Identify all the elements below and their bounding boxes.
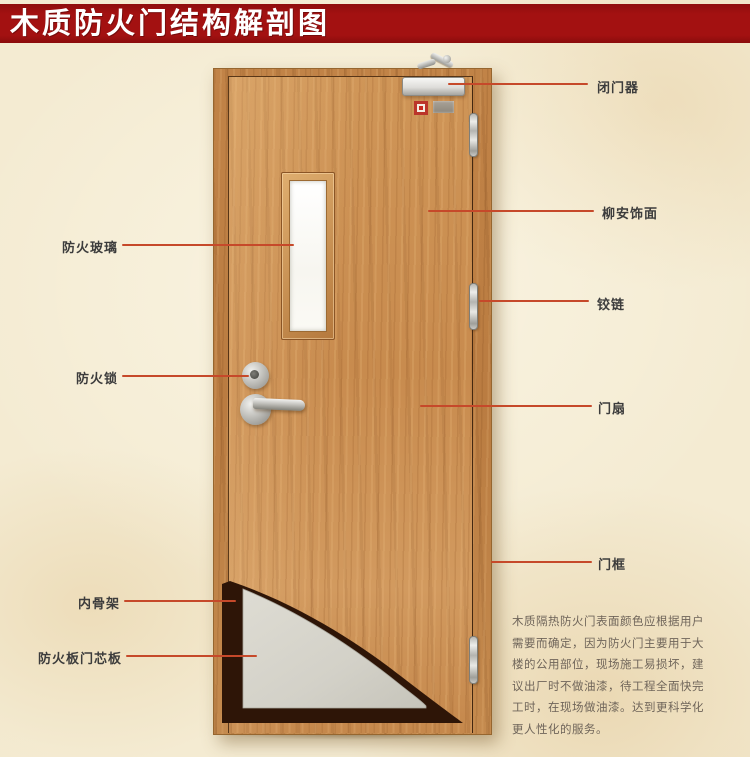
description-line: 楼的公用部位，现场施工易损坏，建 [512,655,712,677]
leader-line-lauan-veneer [428,210,594,212]
label-hinge: 铰链 [597,294,625,313]
description-line: 议出厂时不做油漆，待工程全面快完 [512,677,712,699]
description-line: 木质隔热防火门表面颜色应根据用户 [512,612,712,634]
label-fire-lock: 防火锁 [76,368,118,387]
lock-lever-handle [253,398,305,411]
leader-line-fire-board-core [126,655,257,657]
fire-rating-badge [414,101,428,115]
label-fire-glass: 防火玻璃 [62,237,118,256]
door-closer-elbow [443,55,451,63]
description-line: 工时，在现场做油漆。达到更科学化 [512,698,712,720]
description-line: 更人性化的服务。 [512,720,712,742]
leader-line-inner-skeleton [124,600,236,602]
door-closer-plate [433,101,454,113]
fire-glass-panel [281,172,335,340]
label-door-leaf: 门扇 [598,398,626,417]
door-cutaway-section [213,573,490,733]
leader-line-door-leaf [420,405,592,407]
leader-line-door-frame [491,561,592,563]
fire-glass [289,180,327,332]
fire-core-board-shape [243,589,426,708]
label-inner-skeleton: 内骨架 [78,593,120,612]
hinge-middle [469,283,478,330]
label-fire-board-core: 防火板门芯板 [38,648,122,667]
label-lauan-veneer: 柳安饰面 [602,203,658,222]
label-door-closer: 闭门器 [597,77,639,96]
product-description: 木质隔热防火门表面颜色应根据用户 需要而确定，因为防火门主要用于大 楼的公用部位… [512,612,712,742]
leader-line-fire-glass [122,244,294,246]
description-line: 需要而确定，因为防火门主要用于大 [512,634,712,656]
leader-line-door-closer [448,83,588,85]
label-door-frame: 门框 [598,554,626,573]
door-closer-body [402,77,465,96]
hinge-bottom [469,636,478,684]
hinge-top [469,113,478,157]
leader-line-fire-lock [122,375,249,377]
title-banner: 木质防火门结构解剖图 [0,4,750,43]
leader-line-hinge [479,300,589,302]
keyhole-icon [250,370,259,379]
page-title: 木质防火门结构解剖图 [10,4,330,43]
